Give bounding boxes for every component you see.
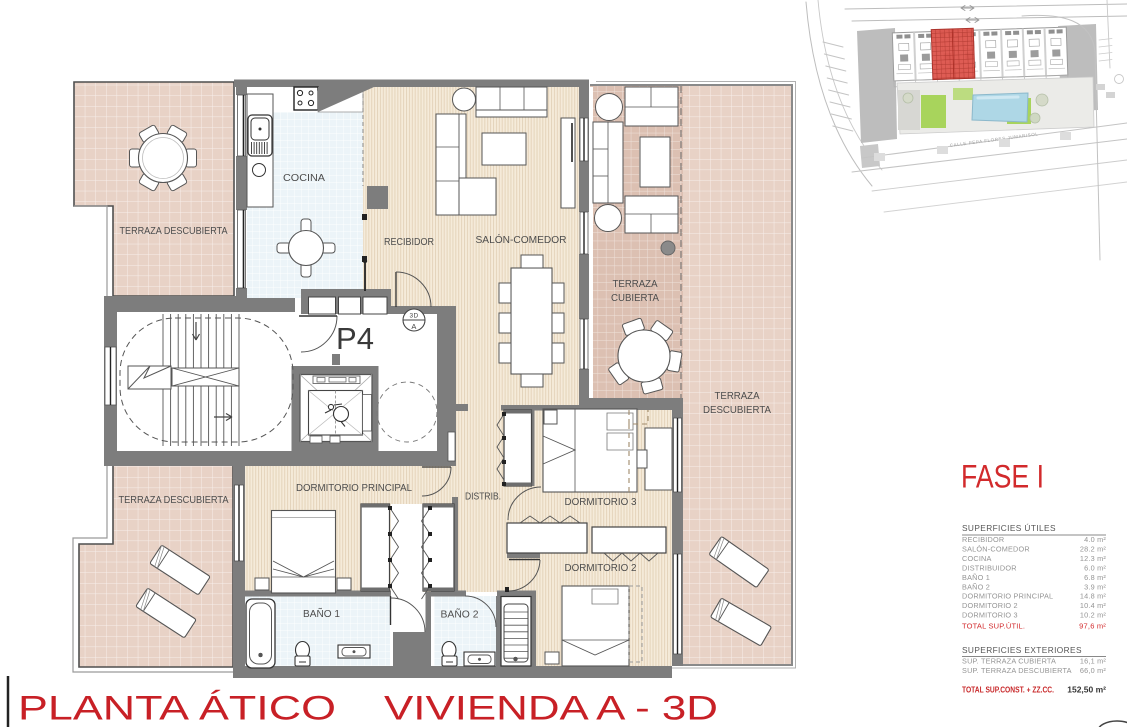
svg-text:152,50 m²: 152,50 m² — [1067, 685, 1106, 695]
svg-text:CALLE PEPA FLORES JUMARISOL: CALLE PEPA FLORES JUMARISOL — [949, 131, 1038, 148]
svg-text:PLANTA ÁTICO: PLANTA ÁTICO — [18, 689, 336, 727]
svg-text:BAÑO 2: BAÑO 2 — [962, 582, 990, 591]
svg-text:DORMITORIO 3: DORMITORIO 3 — [565, 497, 637, 508]
svg-text:10.2 m²: 10.2 m² — [1080, 611, 1107, 620]
svg-text:COCINA: COCINA — [283, 172, 325, 184]
svg-text:28.2 m²: 28.2 m² — [1080, 544, 1107, 553]
svg-text:DISTRIBUIDOR: DISTRIBUIDOR — [962, 563, 1017, 572]
svg-text:DISTRIB.: DISTRIB. — [465, 492, 501, 503]
svg-text:66,0 m²: 66,0 m² — [1080, 666, 1107, 675]
svg-text:3D: 3D — [410, 313, 419, 320]
svg-text:SUP. TERRAZA CUBIERTA: SUP. TERRAZA CUBIERTA — [962, 657, 1056, 666]
svg-text:TERRAZA DESCUBIERTA: TERRAZA DESCUBIERTA — [119, 494, 229, 506]
svg-text:P4: P4 — [336, 321, 374, 356]
svg-text:6.8 m²: 6.8 m² — [1084, 573, 1106, 582]
svg-text:TERRAZA: TERRAZA — [613, 279, 658, 290]
svg-text:12.3 m²: 12.3 m² — [1080, 554, 1107, 563]
svg-text:SUP. TERRAZA DESCUBIERTA: SUP. TERRAZA DESCUBIERTA — [962, 666, 1072, 675]
svg-text:BAÑO 2: BAÑO 2 — [441, 608, 479, 621]
svg-text:BAÑO 1: BAÑO 1 — [962, 573, 990, 582]
svg-text:TOTAL SUP.CONST. + ZZ.CC.: TOTAL SUP.CONST. + ZZ.CC. — [962, 686, 1054, 695]
svg-text:VIVIENDA A - 3D: VIVIENDA A - 3D — [384, 690, 718, 727]
svg-text:TERRAZA DESCUBIERTA: TERRAZA DESCUBIERTA — [120, 225, 228, 237]
svg-text:16,1 m²: 16,1 m² — [1080, 657, 1107, 666]
svg-text:SUPERFICIES EXTERIORES: SUPERFICIES EXTERIORES — [962, 645, 1082, 655]
svg-text:DORMITORIO 3: DORMITORIO 3 — [962, 611, 1018, 620]
svg-text:SALÓN-COMEDOR: SALÓN-COMEDOR — [476, 233, 567, 246]
svg-text:14.8 m²: 14.8 m² — [1080, 592, 1107, 601]
svg-text:BAÑO 1: BAÑO 1 — [303, 607, 340, 620]
svg-text:3.9 m²: 3.9 m² — [1084, 582, 1106, 591]
svg-text:SUPERFICIES ÚTILES: SUPERFICIES ÚTILES — [962, 523, 1056, 533]
svg-text:RECIBIDOR: RECIBIDOR — [962, 535, 1004, 544]
svg-text:DORMITORIO 2: DORMITORIO 2 — [962, 601, 1018, 610]
svg-text:DORMITORIO PRINCIPAL: DORMITORIO PRINCIPAL — [296, 483, 412, 494]
svg-text:DESCUBIERTA: DESCUBIERTA — [703, 405, 771, 416]
svg-text:COCINA: COCINA — [962, 554, 992, 563]
svg-text:10.4 m²: 10.4 m² — [1080, 601, 1107, 610]
svg-text:97,6 m²: 97,6 m² — [1079, 622, 1106, 631]
svg-text:DORMITORIO 2: DORMITORIO 2 — [565, 563, 637, 574]
svg-text:A: A — [411, 322, 416, 331]
svg-text:CUBIERTA: CUBIERTA — [611, 293, 659, 304]
svg-text:FASE I: FASE I — [961, 459, 1044, 495]
svg-text:RECIBIDOR: RECIBIDOR — [384, 236, 434, 248]
svg-text:TERRAZA: TERRAZA — [715, 391, 760, 402]
svg-text:TOTAL SUP.ÚTIL.: TOTAL SUP.ÚTIL. — [962, 622, 1025, 631]
svg-text:SALÓN-COMEDOR: SALÓN-COMEDOR — [962, 544, 1030, 553]
svg-text:4.0 m²: 4.0 m² — [1084, 535, 1106, 544]
svg-text:DORMITORIO PRINCIPAL: DORMITORIO PRINCIPAL — [962, 592, 1053, 601]
svg-text:6.0 m²: 6.0 m² — [1084, 563, 1106, 572]
